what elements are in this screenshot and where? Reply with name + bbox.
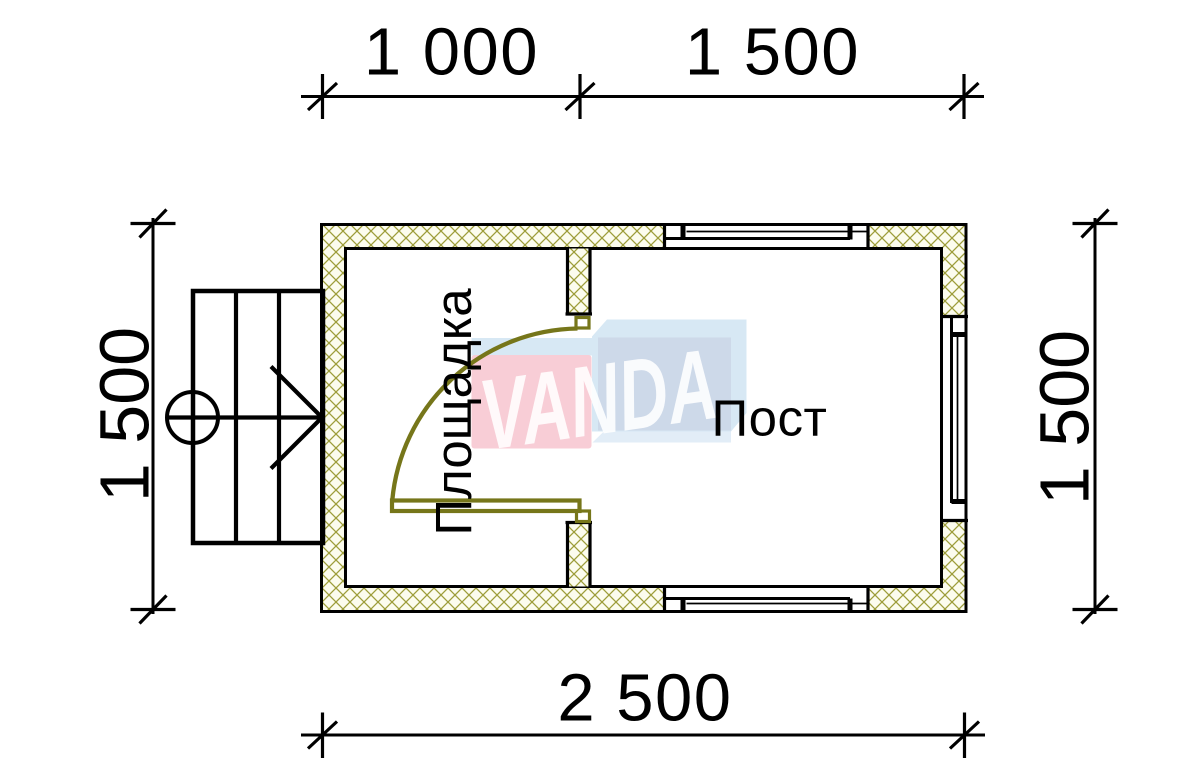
svg-text:1 500: 1 500 [685, 15, 860, 90]
svg-text:2 500: 2 500 [557, 661, 732, 736]
svg-text:1 500: 1 500 [1026, 330, 1104, 505]
svg-text:1 000: 1 000 [364, 15, 539, 90]
svg-text:Пост: Пост [712, 390, 828, 447]
svg-text:Площадка: Площадка [425, 288, 482, 536]
svg-text:1 500: 1 500 [86, 327, 164, 502]
